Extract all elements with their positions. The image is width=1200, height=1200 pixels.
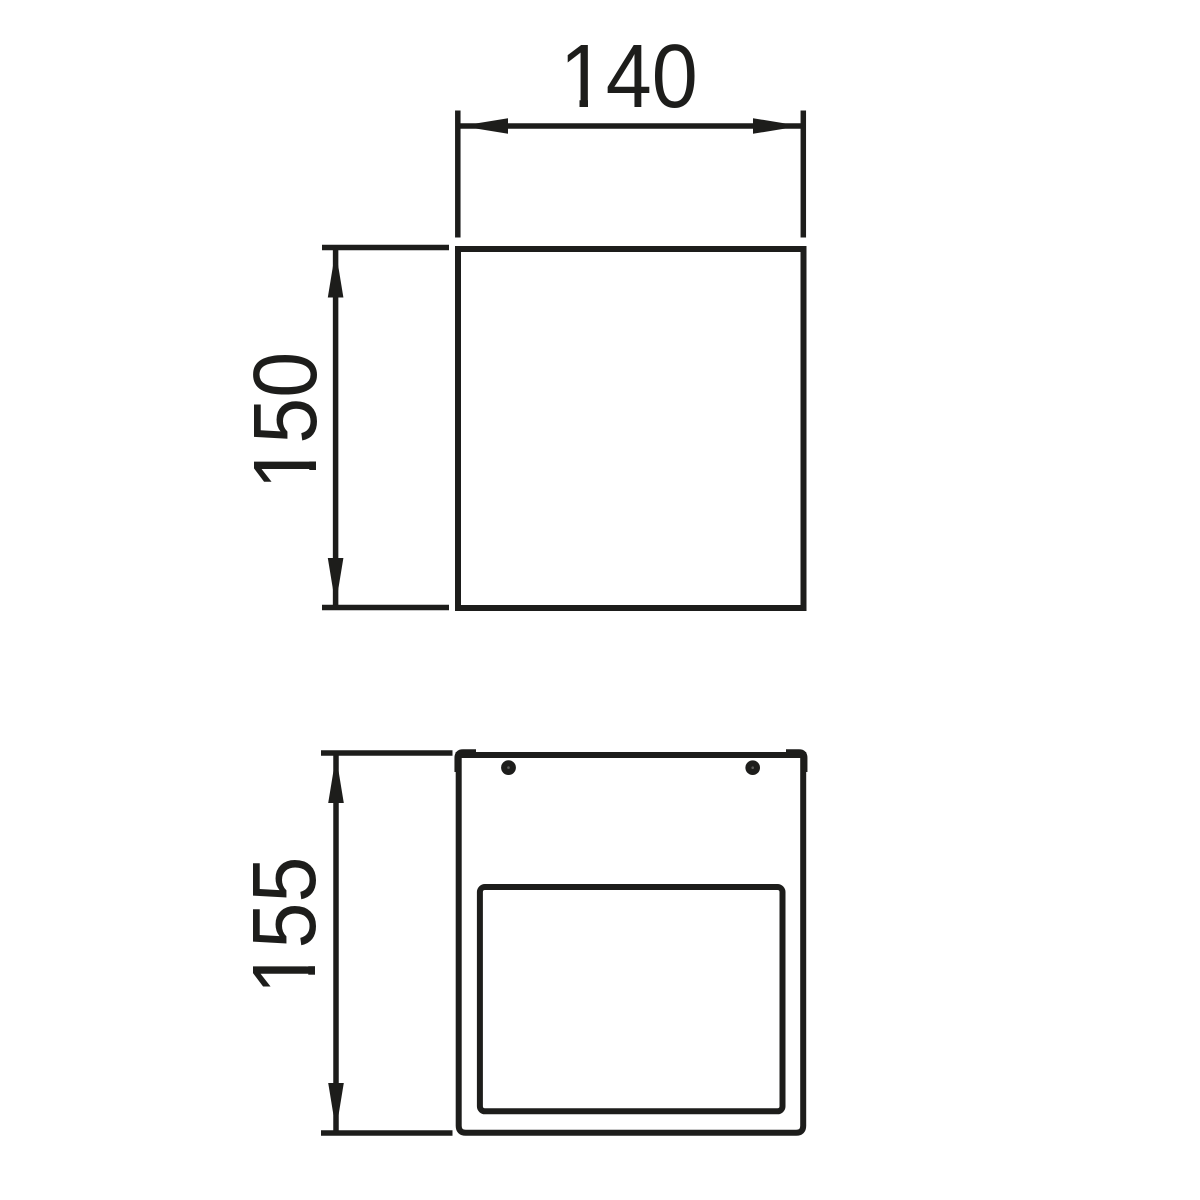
svg-text:155: 155 [235, 857, 335, 995]
svg-text:150: 150 [236, 352, 336, 490]
svg-text:140: 140 [560, 27, 698, 127]
